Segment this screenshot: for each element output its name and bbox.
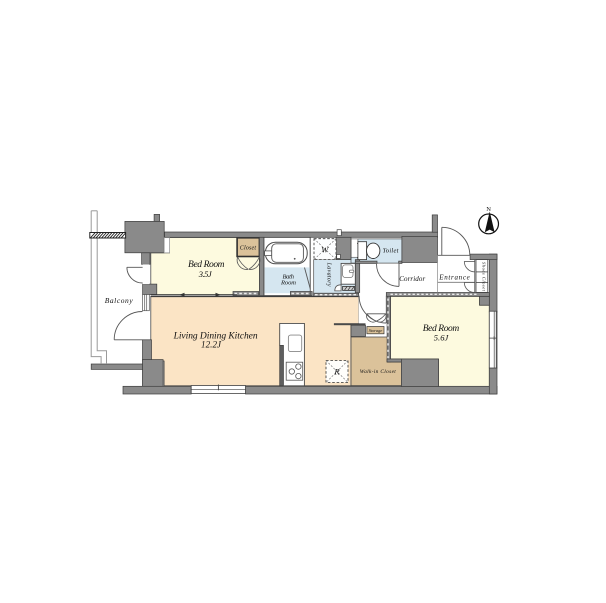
svg-text:Shoes Closet: Shoes Closet <box>481 262 486 292</box>
svg-text:12.2J: 12.2J <box>201 339 222 349</box>
svg-text:Lavatory: Lavatory <box>325 262 331 287</box>
svg-text:W: W <box>321 244 329 254</box>
svg-text:Storage: Storage <box>369 328 383 333</box>
svg-text:Closet: Closet <box>240 245 257 251</box>
svg-text:Walk-in Closet: Walk-in Closet <box>360 369 397 375</box>
svg-text:Corridor: Corridor <box>399 275 425 283</box>
svg-text:3.5J: 3.5J <box>198 269 213 279</box>
svg-text:Entrance: Entrance <box>438 274 470 282</box>
svg-text:N: N <box>486 206 491 213</box>
svg-text:5.6J: 5.6J <box>434 333 450 343</box>
svg-text:R: R <box>333 367 340 377</box>
svg-text:Room: Room <box>280 279 296 286</box>
svg-text:Balcony: Balcony <box>105 296 134 305</box>
svg-text:Toilet: Toilet <box>383 248 399 255</box>
